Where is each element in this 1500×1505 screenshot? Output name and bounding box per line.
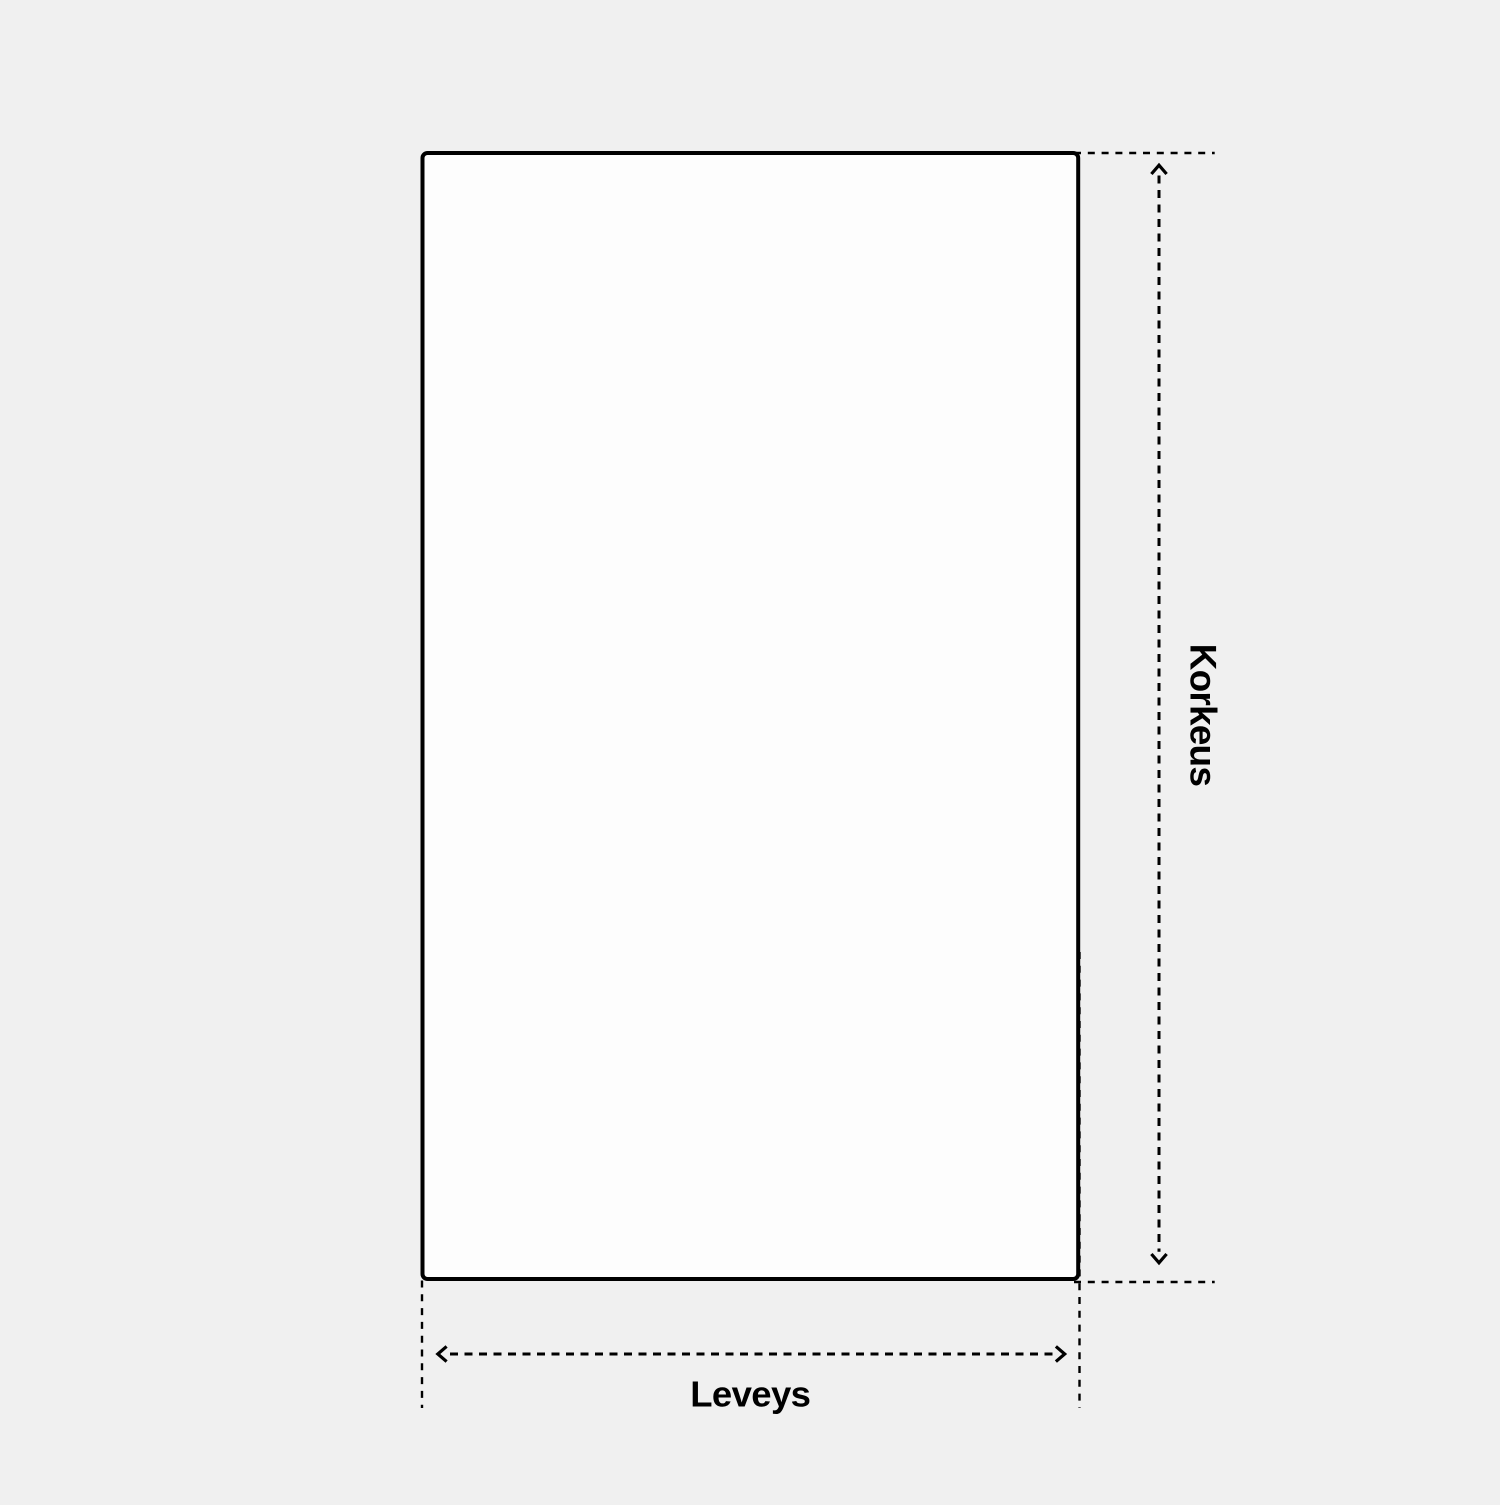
svg-text:Korkeus: Korkeus [1183,644,1224,787]
svg-text:Leveys: Leveys [690,1373,810,1414]
